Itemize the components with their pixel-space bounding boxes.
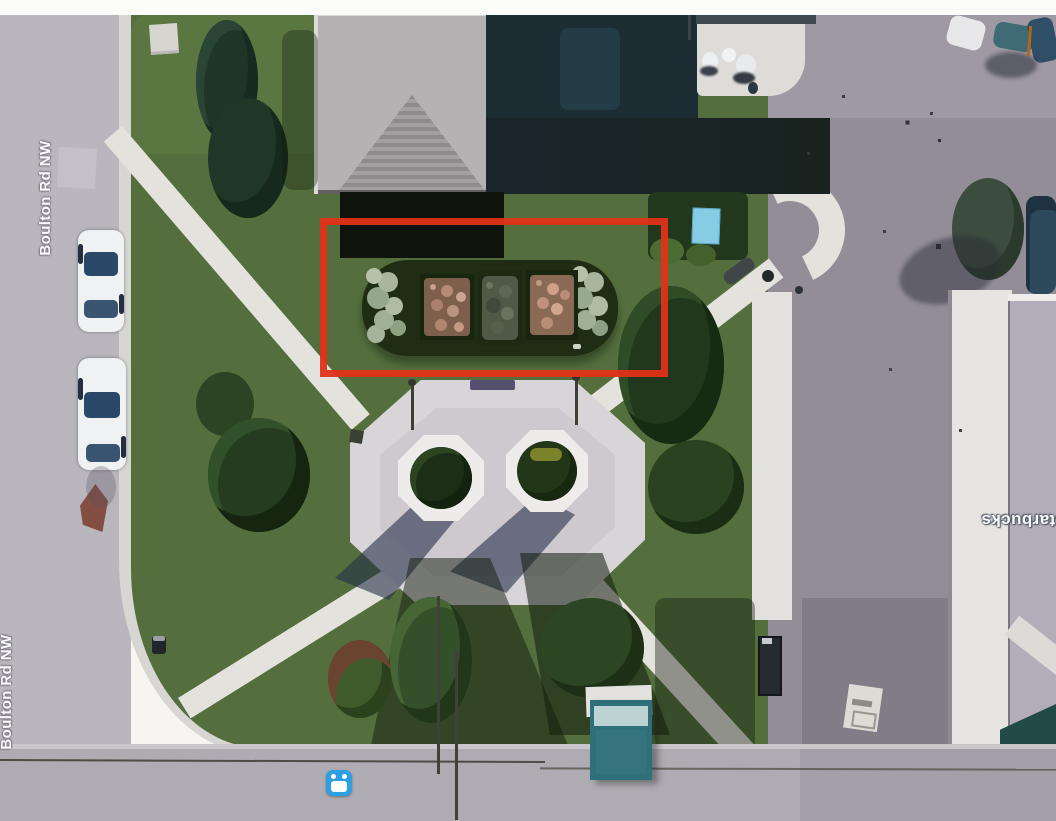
- plaza-utility-box: [349, 429, 364, 444]
- building-shadow-band: [486, 118, 830, 194]
- tree-right-lower: [648, 440, 744, 534]
- plaza-mat: [470, 380, 515, 390]
- conifer-shadow: [282, 30, 318, 190]
- plaza-pole-left-head: [408, 379, 416, 386]
- car-windshield: [84, 252, 118, 276]
- small-sign-dark: [758, 636, 782, 696]
- car-wheel-shade: [119, 294, 124, 314]
- sidewalk-right-strip: [752, 292, 792, 620]
- bus-icon: [326, 770, 352, 796]
- cyan-tarp: [691, 208, 720, 245]
- lawn-sign: [149, 23, 179, 55]
- bus-wheel-dot: [342, 774, 347, 779]
- car-wheel-shade: [121, 436, 126, 458]
- bus-wheel-dot: [331, 774, 336, 779]
- transit-marker: [326, 770, 352, 796]
- planter-right-yellow-shrub: [530, 448, 562, 461]
- hedge-bush: [686, 244, 716, 266]
- car-rear-window: [86, 444, 120, 462]
- car-wheel-shade: [78, 244, 83, 264]
- white-cart-box: [851, 710, 877, 729]
- building-dark-roof-highlight: [560, 28, 620, 110]
- planter-left-shrub: [410, 447, 472, 509]
- lawn-shadow-swath: [655, 598, 755, 750]
- car-windshield: [84, 392, 120, 418]
- light-pole: [688, 14, 691, 40]
- monument-sign-inner: [596, 730, 646, 774]
- bottom-road-dark-right: [800, 749, 1056, 821]
- parked-car: [78, 358, 126, 470]
- bus-body: [331, 781, 347, 792]
- starbucks-wall-shadow-line: [948, 290, 952, 760]
- road-label-boulton-top: Boulton Rd NW: [37, 138, 55, 258]
- plaza-pole-right: [575, 377, 578, 425]
- small-sign-dark-top: [762, 638, 772, 644]
- annotation-rectangle: [320, 218, 668, 377]
- pole-thin: [437, 596, 440, 774]
- walkway-object: [762, 270, 774, 282]
- pedestrian-shadow: [700, 66, 718, 76]
- plaza-pole-left: [411, 382, 414, 430]
- conifer-top-left: [208, 98, 288, 218]
- tree-bottom-red-tinge: [328, 640, 392, 718]
- pedestrian-figure: [722, 48, 736, 62]
- building-top-curb: [696, 14, 816, 24]
- scanned-aerial-map-page: Boulton Rd NW Boulton Rd NW Starbucks: [0, 0, 1056, 821]
- starbucks-roof: [1008, 300, 1056, 760]
- tree-bottom-center: [540, 598, 644, 698]
- place-label-starbucks: Starbucks: [958, 504, 1056, 530]
- walkway-object: [795, 286, 803, 294]
- pedestrian-shadow: [748, 82, 758, 94]
- tree-bottom: [390, 597, 472, 723]
- car-rear-window: [84, 300, 118, 318]
- scan-margin-top: [0, 0, 1056, 15]
- tree-left-middle: [208, 418, 310, 532]
- monument-sign-light-strip: [594, 706, 648, 726]
- car-wheel-shade: [78, 378, 83, 400]
- trash-can-lid: [153, 636, 165, 641]
- road-debris-smear: [86, 466, 116, 508]
- starbucks-roof-top-edge: [1008, 294, 1056, 301]
- car-right-dark: [1026, 196, 1056, 294]
- parked-car: [78, 230, 124, 332]
- road-patch: [57, 147, 97, 189]
- road-label-boulton-bottom: Boulton Rd NW: [0, 632, 16, 752]
- pole-thin: [455, 650, 458, 820]
